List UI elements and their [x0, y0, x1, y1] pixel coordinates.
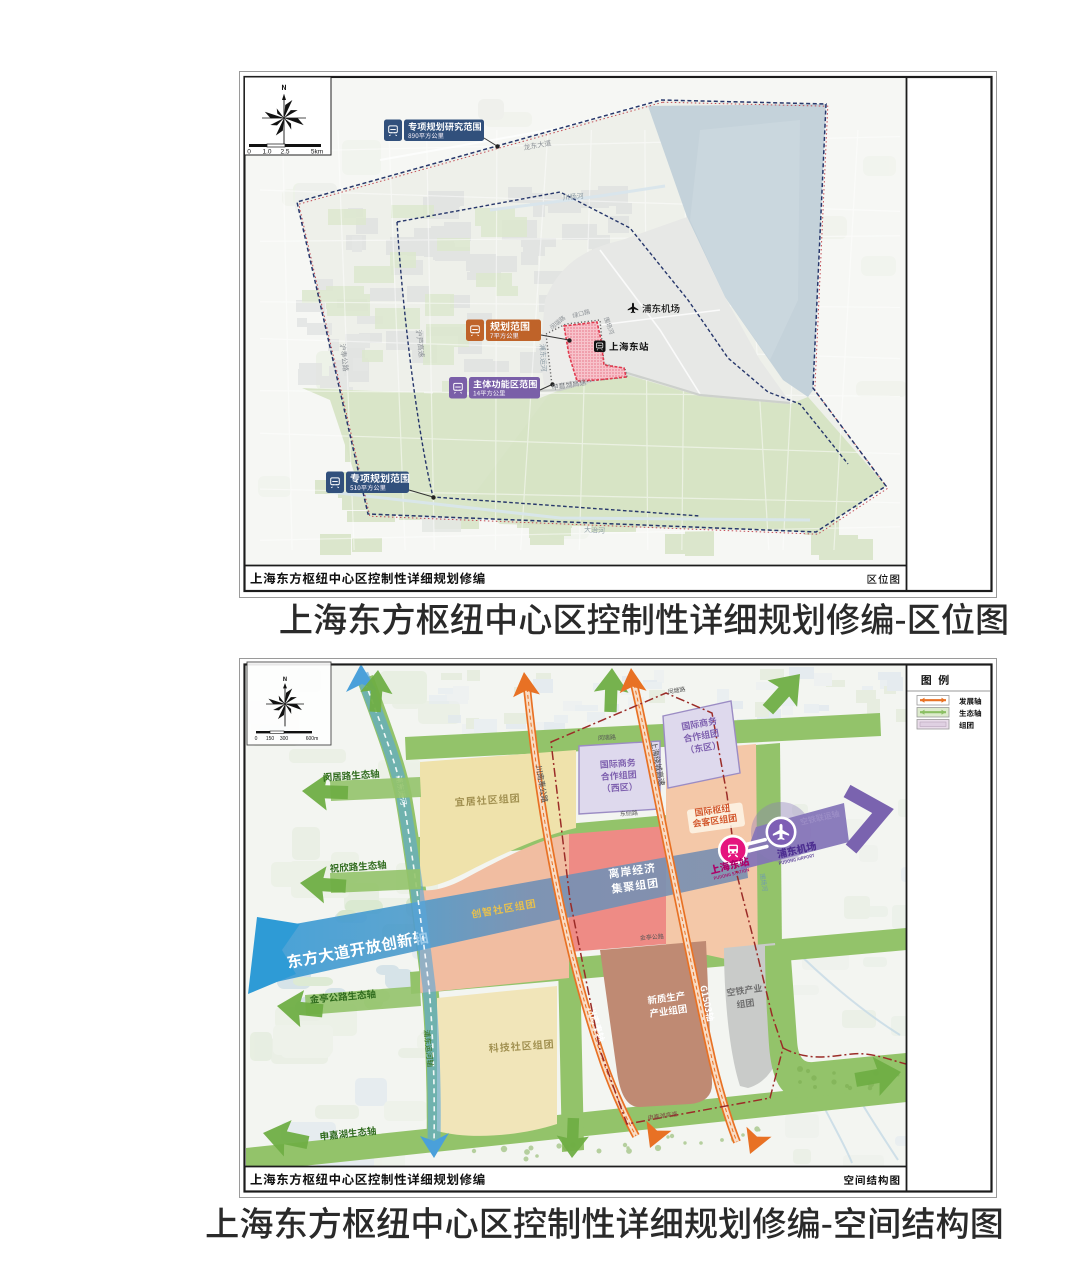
svg-text:300: 300 [280, 736, 289, 742]
svg-text:0: 0 [247, 149, 251, 156]
svg-text:1.0: 1.0 [262, 149, 271, 156]
svg-text:600m: 600m [306, 736, 319, 742]
svg-text:0: 0 [255, 736, 258, 742]
svg-text:150: 150 [266, 736, 275, 742]
svg-text:2.5: 2.5 [280, 149, 289, 156]
svg-text:5km: 5km [311, 149, 323, 156]
